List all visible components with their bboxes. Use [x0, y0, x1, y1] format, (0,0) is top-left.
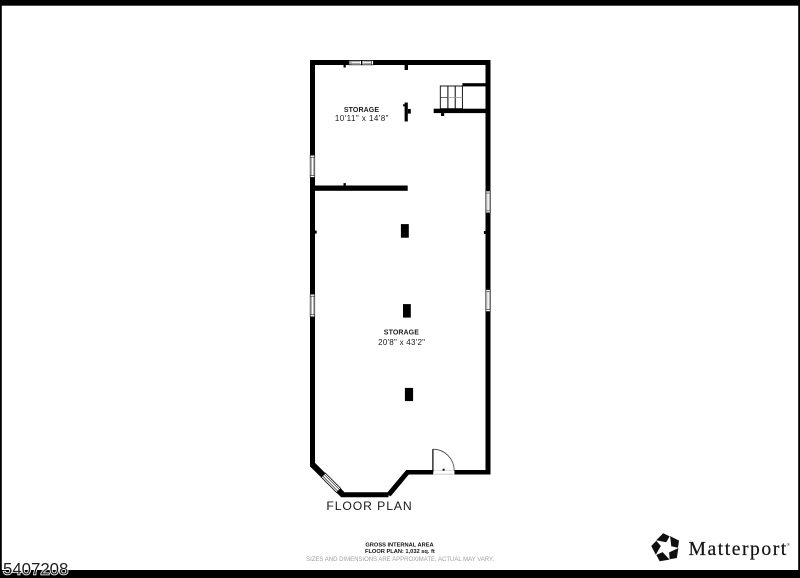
- svg-text:FLOOR PLAN: FLOOR PLAN: [326, 499, 412, 513]
- svg-text:STORAGE: STORAGE: [384, 330, 419, 337]
- svg-text:5407208: 5407208: [3, 559, 68, 578]
- svg-text:10'11" x 14'8": 10'11" x 14'8": [335, 114, 389, 123]
- svg-text:Matterport: Matterport: [689, 539, 788, 560]
- svg-text:FLOOR PLAN: 1,032 sq. ft: FLOOR PLAN: 1,032 sq. ft: [365, 549, 435, 555]
- svg-text:SIZES AND DIMENSIONS ARE APPRO: SIZES AND DIMENSIONS ARE APPROXIMATE, AC…: [306, 557, 494, 563]
- svg-text:STORAGE: STORAGE: [344, 107, 379, 114]
- svg-text:GROSS INTERNAL AREA: GROSS INTERNAL AREA: [365, 543, 433, 549]
- svg-text:20'8" x 43'2": 20'8" x 43'2": [378, 338, 425, 347]
- svg-text:®: ®: [787, 542, 791, 547]
